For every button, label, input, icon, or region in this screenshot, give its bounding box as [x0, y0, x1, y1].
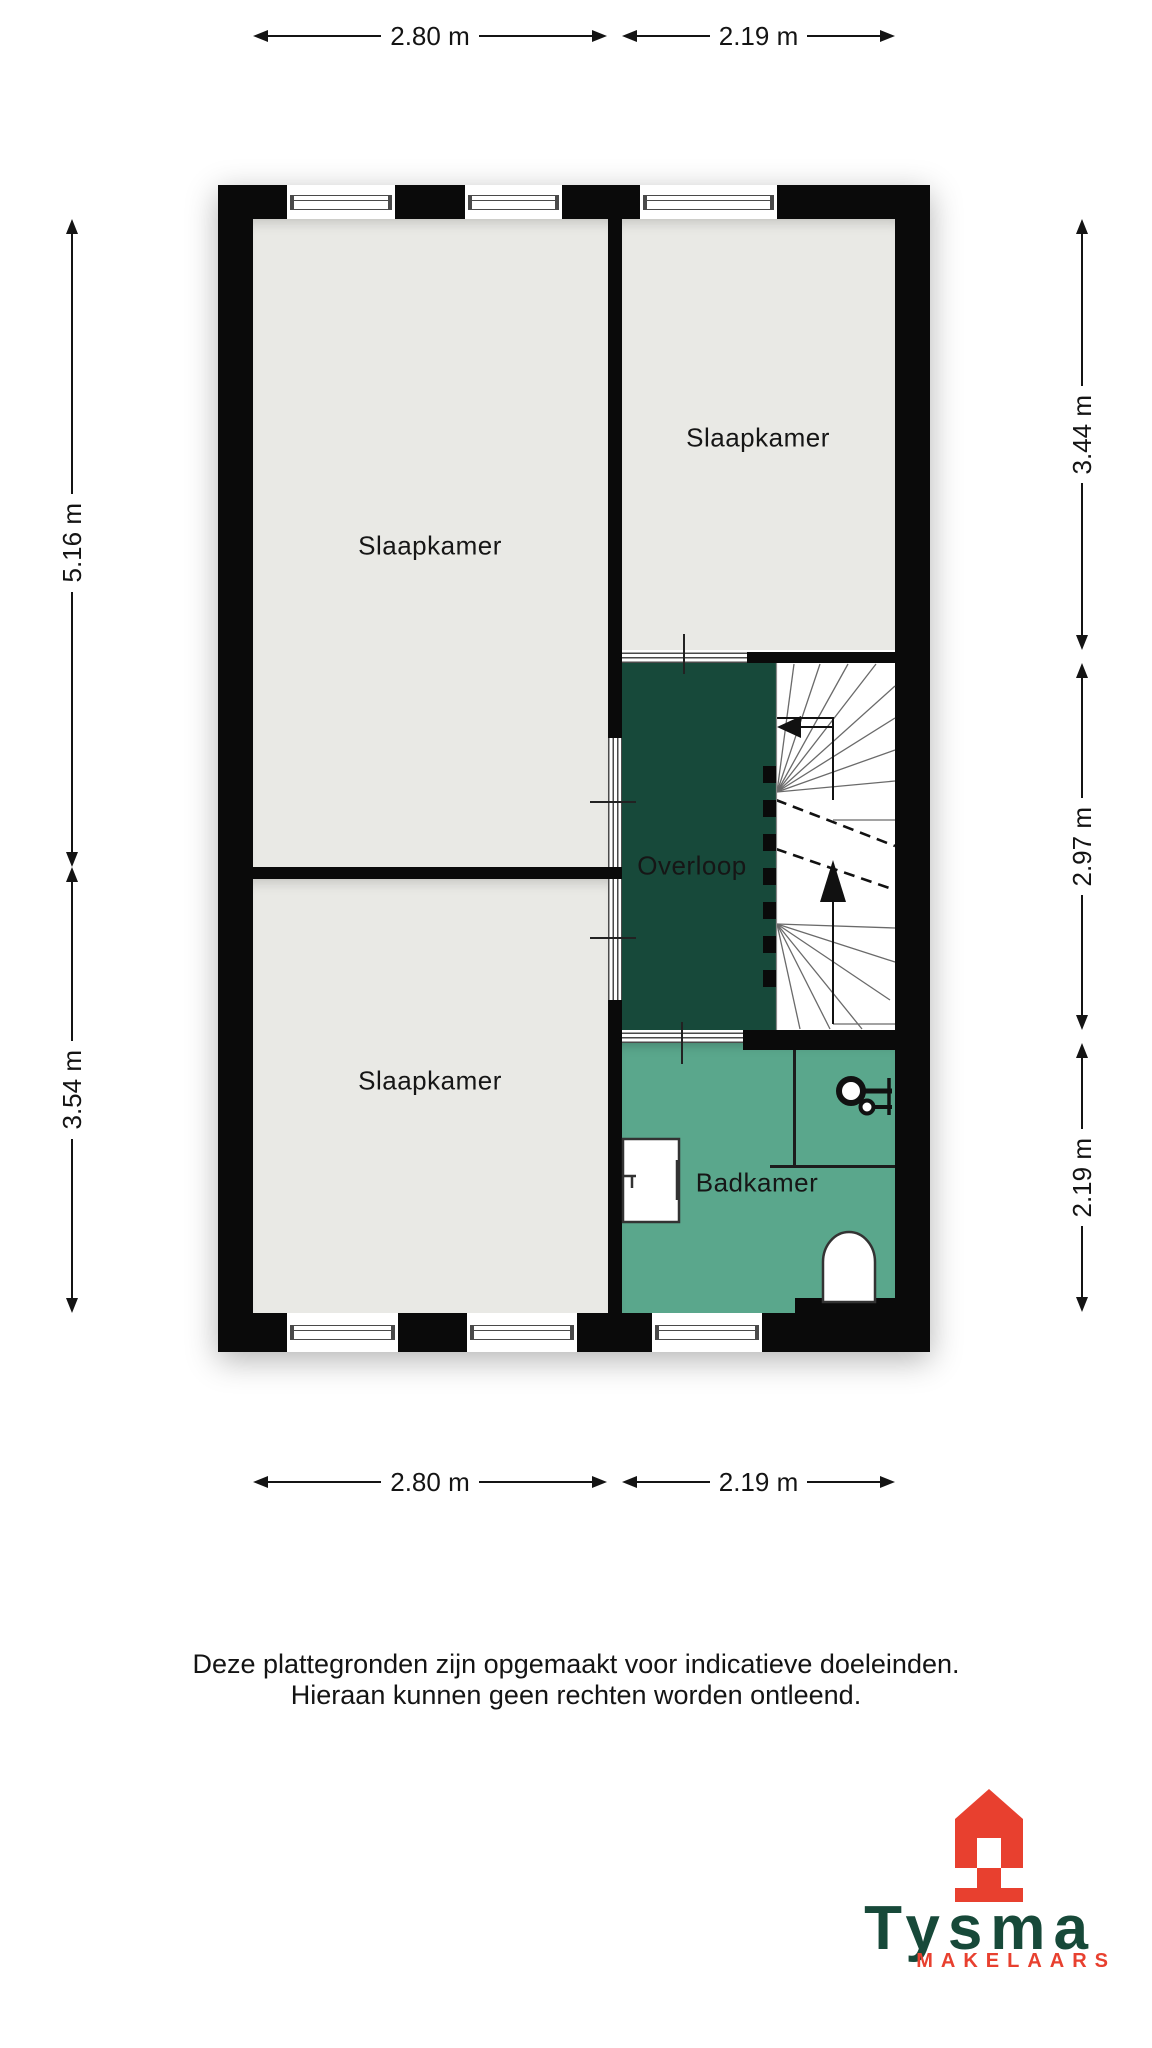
dimension-right-upper: 3.44 m — [1068, 219, 1096, 650]
arrow-left-icon — [253, 30, 268, 42]
arrow-left-icon — [253, 1476, 268, 1488]
dimension-label: 3.54 m — [57, 1041, 88, 1139]
dimension-label: 2.19 m — [710, 1467, 808, 1498]
disclaimer-line-2: Hieraan kunnen geen rechten worden ontle… — [0, 1680, 1152, 1711]
arrow-up-icon — [1076, 219, 1088, 234]
arrow-left-icon — [622, 30, 637, 42]
arrow-down-icon — [66, 1298, 78, 1313]
room-label-slaapkamer-bottom-left: Slaapkamer — [358, 1066, 502, 1097]
toilet-icon — [823, 1232, 875, 1302]
sink-icon — [622, 1139, 679, 1222]
stair-railing — [763, 766, 776, 987]
arrow-up-icon — [1076, 663, 1088, 678]
dimension-top-left: 2.80 m — [253, 22, 607, 50]
arrow-right-icon — [592, 1476, 607, 1488]
dimension-label: 2.19 m — [710, 21, 808, 52]
logo-house-icon — [955, 1789, 1023, 1902]
stairs — [763, 663, 895, 1030]
floorplan-page: Slaapkamer Slaapkamer Slaapkamer Overloo… — [0, 0, 1152, 2048]
arrow-up-icon — [1076, 1043, 1088, 1058]
dimension-label: 5.16 m — [57, 494, 88, 592]
arrow-right-icon — [592, 30, 607, 42]
disclaimer-line-1: Deze plattegronden zijn opgemaakt voor i… — [0, 1649, 1152, 1680]
dimension-label: 2.19 m — [1067, 1129, 1098, 1227]
room-label-slaapkamer-top-right: Slaapkamer — [686, 423, 830, 454]
plan-graphics — [0, 0, 1152, 2048]
arrow-right-icon — [880, 1476, 895, 1488]
dimension-left-lower: 3.54 m — [58, 867, 86, 1313]
arrow-up-icon — [66, 219, 78, 234]
arrow-down-icon — [1076, 1297, 1088, 1312]
room-label-badkamer: Badkamer — [696, 1168, 819, 1199]
logo-tagline: MAKELAARS — [830, 1950, 1116, 1973]
dimension-label: 2.80 m — [381, 1467, 479, 1498]
arrow-down-icon — [1076, 1015, 1088, 1030]
room-label-overloop: Overloop — [637, 851, 747, 882]
arrow-left-icon — [622, 1476, 637, 1488]
dimension-bottom-left: 2.80 m — [253, 1468, 607, 1496]
arrow-down-icon — [1076, 635, 1088, 650]
dimension-left-upper: 5.16 m — [58, 219, 86, 867]
arrow-down-icon — [66, 852, 78, 867]
dimension-bottom-right: 2.19 m — [622, 1468, 895, 1496]
dimension-label: 2.97 m — [1067, 798, 1098, 896]
dimension-right-middle: 2.97 m — [1068, 663, 1096, 1030]
arrow-up-icon — [66, 867, 78, 882]
disclaimer-text: Deze plattegronden zijn opgemaakt voor i… — [0, 1649, 1152, 1711]
dimension-right-lower: 2.19 m — [1068, 1043, 1096, 1312]
arrow-right-icon — [880, 30, 895, 42]
shower-icon — [839, 1078, 892, 1115]
dimension-label: 2.80 m — [381, 21, 479, 52]
dimension-label: 3.44 m — [1067, 386, 1098, 484]
dimension-top-right: 2.19 m — [622, 22, 895, 50]
room-label-slaapkamer-top-left: Slaapkamer — [358, 531, 502, 562]
